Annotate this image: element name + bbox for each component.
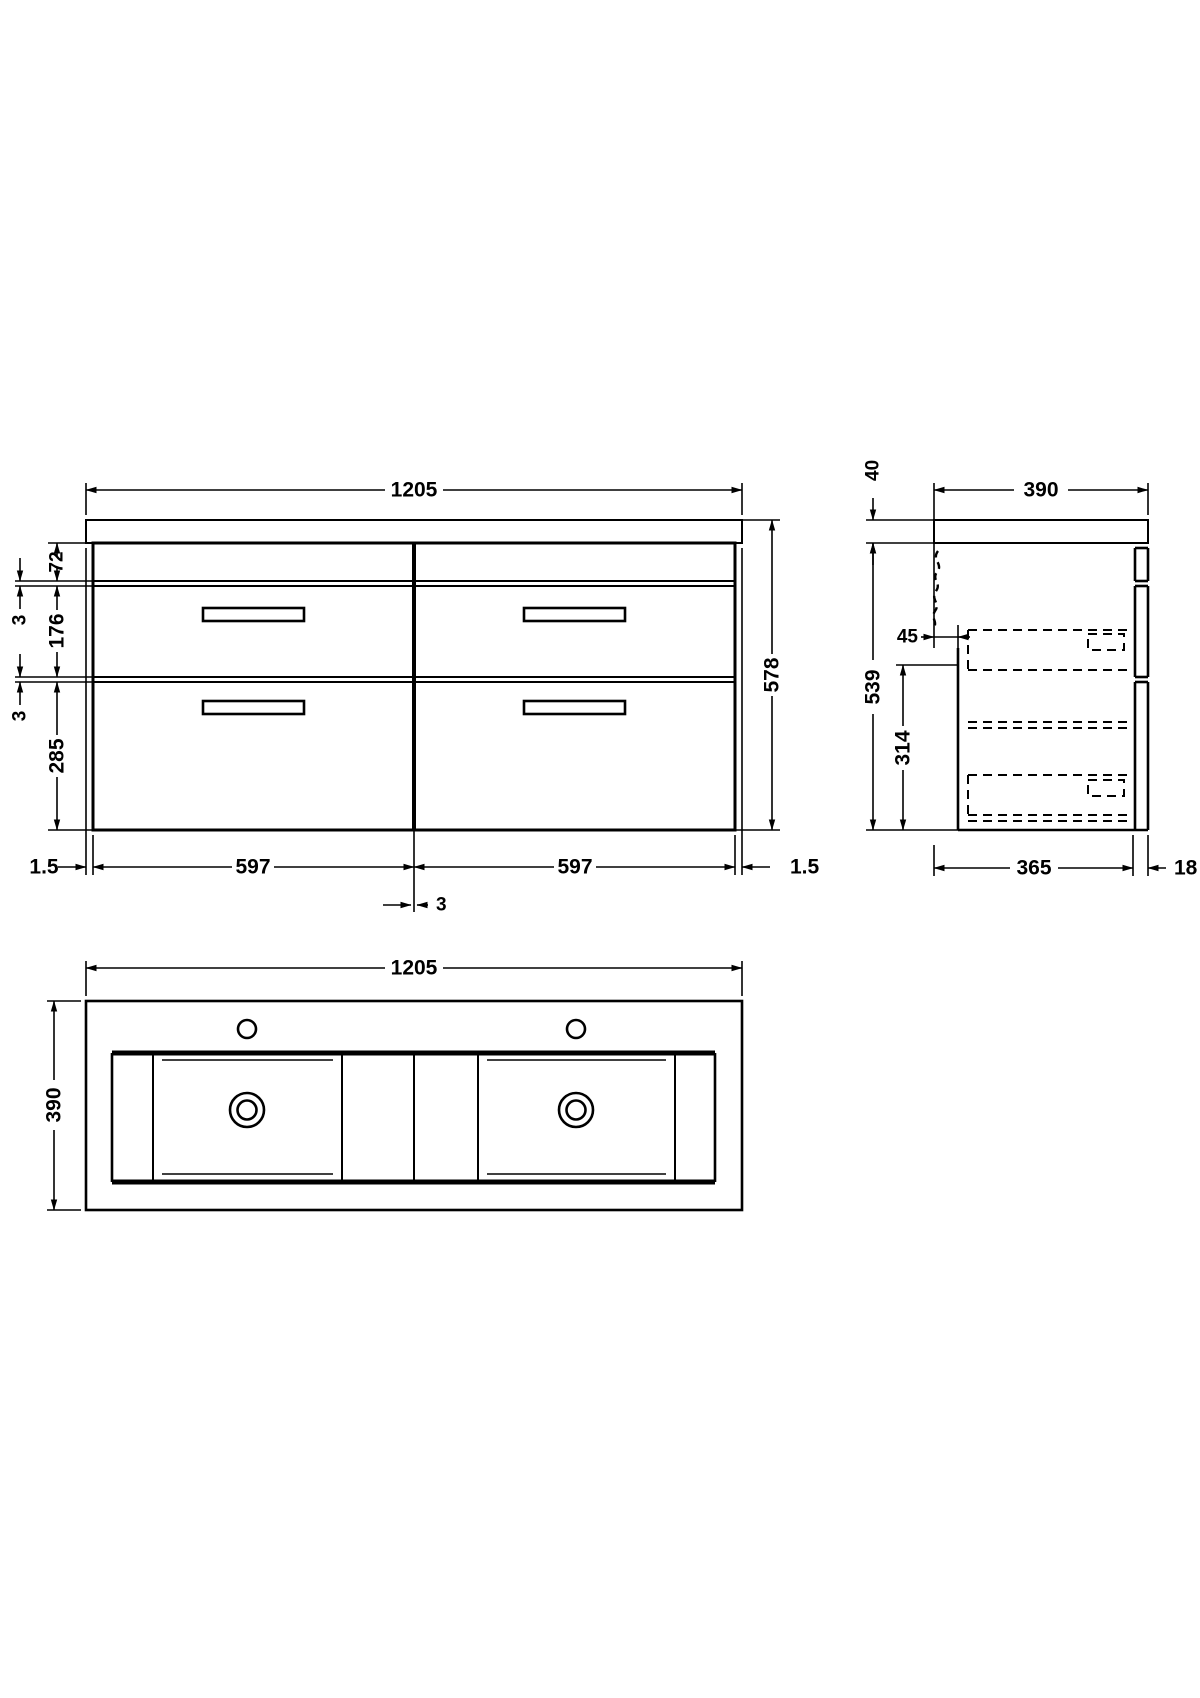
dim-side-front-panel: 18	[1174, 857, 1198, 880]
dim-front-upper-drawer: 176	[46, 613, 69, 648]
front-dim-width: 1205	[86, 479, 742, 502]
side-dim-carcass-height: 539	[862, 543, 885, 830]
plan-dim-width: 1205	[86, 957, 742, 980]
drawing-sheet: 1205 578 72 176 285 3 3	[0, 0, 1200, 1698]
plan-view: 1205 390	[43, 957, 743, 1211]
front-dim-gaps: 3 3	[10, 558, 31, 721]
dim-plan-width: 1205	[391, 957, 438, 980]
drain-right	[559, 1093, 593, 1127]
front-extension-lines	[15, 483, 780, 912]
dim-side-bracket-offset: 45	[897, 627, 919, 648]
dim-side-depth: 390	[1023, 479, 1058, 502]
dim-front-left-offset: 1.5	[29, 856, 59, 879]
hidden-runner-bracket-lower	[1088, 780, 1124, 796]
side-extension-lines	[866, 483, 1148, 876]
side-dim-lower-section: 314	[892, 665, 915, 830]
dim-side-worktop: 40	[863, 460, 884, 481]
drawer-handle-bottom-right	[524, 701, 625, 714]
dim-front-width: 1205	[391, 479, 438, 502]
side-hidden-drawer-boxes	[968, 630, 1133, 821]
plan-dim-depth: 390	[43, 1001, 66, 1210]
tap-hole-right	[567, 1020, 585, 1038]
side-dim-depth: 390	[934, 479, 1148, 502]
dim-front-lower-drawer: 285	[46, 738, 69, 773]
side-view: 40 390 45 539 314	[862, 460, 1198, 880]
front-view: 1205 578 72 176 285 3 3	[10, 479, 820, 916]
front-worktop	[86, 520, 742, 543]
dim-front-height: 578	[761, 657, 784, 692]
side-dim-bottom-chain: 365 18	[934, 857, 1198, 880]
dim-side-carcass-depth: 365	[1016, 857, 1051, 880]
dim-front-right-offset: 1.5	[790, 856, 820, 879]
dim-front-right-door: 597	[557, 856, 592, 879]
dim-side-carcass-height: 539	[862, 669, 885, 704]
drawer-handle-bottom-left	[203, 701, 304, 714]
dim-front-gap-top: 3	[10, 615, 31, 626]
dim-front-divider-gap: 3	[436, 895, 447, 916]
side-worktop	[934, 520, 1148, 543]
drain-left	[230, 1093, 264, 1127]
dim-plan-depth: 390	[43, 1087, 66, 1122]
tap-hole-left	[238, 1020, 256, 1038]
dim-front-gap-middle: 3	[10, 711, 31, 722]
front-dim-height: 578	[761, 520, 784, 830]
side-drawer-fronts	[1135, 548, 1148, 830]
technical-drawing: 1205 578 72 176 285 3 3	[0, 0, 1200, 1698]
drawer-handle-top-left	[203, 608, 304, 621]
drawer-handle-top-right	[524, 608, 625, 621]
hidden-runner-bracket-upper	[1088, 634, 1124, 650]
dim-front-top-section: 72	[47, 551, 68, 572]
dim-front-left-door: 597	[235, 856, 270, 879]
front-dim-bottom-chain: 1.5 597 597 1.5	[29, 856, 819, 879]
dim-side-lower-section: 314	[892, 730, 915, 765]
plan-extension-lines	[47, 961, 742, 1210]
